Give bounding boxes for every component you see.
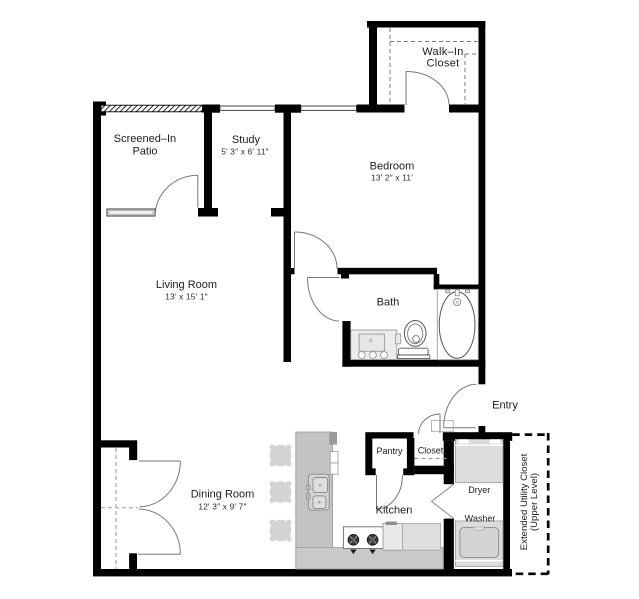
svg-text:Entry: Entry — [492, 400, 518, 412]
svg-text:Closet: Closet — [418, 446, 444, 456]
svg-text:Closet: Closet — [427, 58, 460, 70]
svg-text:12′ 3″ x 9′ 7″: 12′ 3″ x 9′ 7″ — [198, 502, 246, 512]
svg-text:5′ 3″ x 6′ 11″: 5′ 3″ x 6′ 11″ — [221, 147, 269, 157]
svg-text:Dining Room: Dining Room — [191, 489, 255, 501]
svg-text:13′ 2″ x 11′: 13′ 2″ x 11′ — [371, 173, 413, 183]
svg-text:13′ x 15′ 1″: 13′ x 15′ 1″ — [165, 292, 208, 302]
svg-text:Washer: Washer — [465, 514, 496, 524]
svg-text:(Upper Level): (Upper Level) — [529, 473, 540, 531]
svg-text:Walk–In: Walk–In — [422, 46, 463, 58]
svg-text:Dryer: Dryer — [468, 485, 490, 495]
svg-text:Screened–In: Screened–In — [114, 133, 176, 145]
svg-text:Living Room: Living Room — [156, 279, 217, 291]
svg-text:Study: Study — [232, 134, 261, 146]
svg-text:Bedroom: Bedroom — [370, 161, 415, 173]
svg-text:Kitchen: Kitchen — [376, 505, 413, 517]
svg-text:Bath: Bath — [377, 297, 400, 309]
svg-text:Patio: Patio — [132, 146, 157, 158]
svg-text:Pantry: Pantry — [376, 446, 403, 456]
